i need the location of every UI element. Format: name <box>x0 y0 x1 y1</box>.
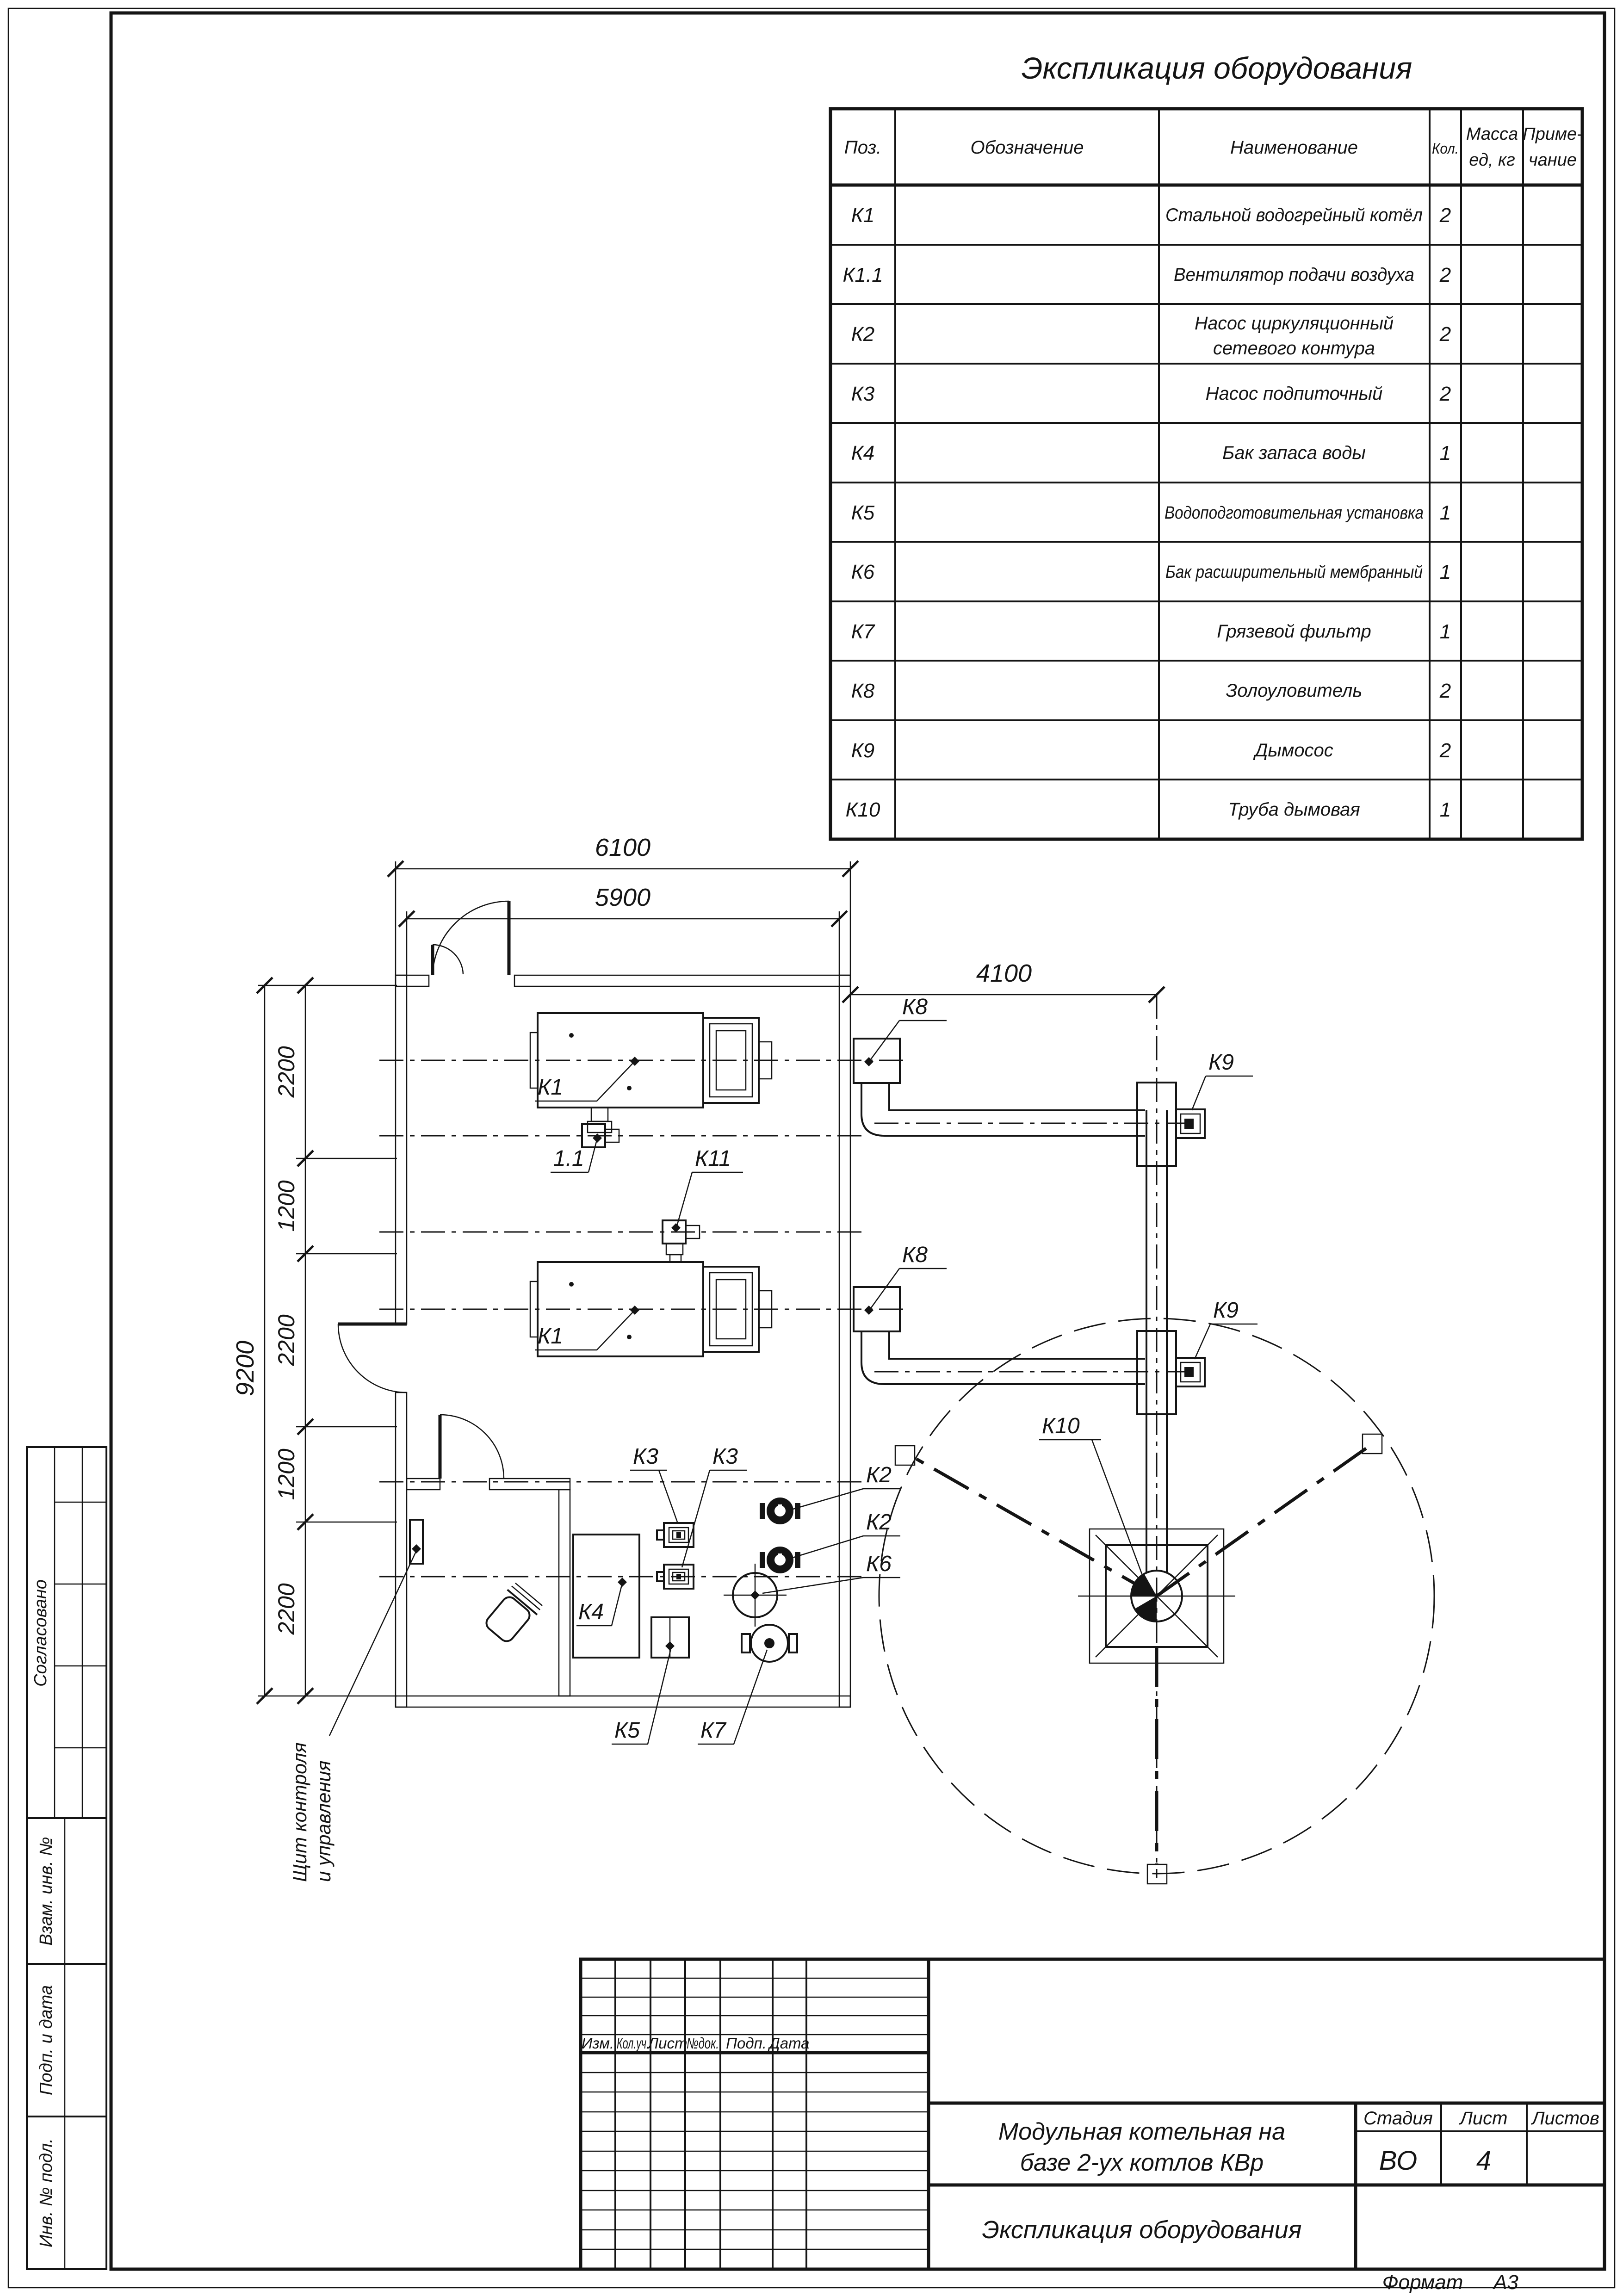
table-row: К10 Труба дымовая 1 <box>846 798 1451 821</box>
svg-text:К2: К2 <box>866 1463 892 1487</box>
col-header-qty: Кол. <box>1432 140 1459 157</box>
svg-text:К11: К11 <box>695 1146 731 1171</box>
dimension-9200: 9200 <box>231 978 397 1704</box>
svg-text:2200: 2200 <box>273 1046 299 1098</box>
stamp-inv-no: Инв. № подл. <box>27 2117 106 2269</box>
project-name-line2: базе 2-ух котлов КВр <box>1020 2149 1264 2176</box>
svg-text:Дата: Дата <box>767 2035 809 2052</box>
side-stamps: Согласовано Взам. инв. № Подп. и дата Ин… <box>27 1447 106 2269</box>
drawing-canvas: Экспликация оборудования Поз. Обозначени… <box>0 0 1623 2296</box>
svg-text:К6: К6 <box>851 561 875 583</box>
svg-text:Стальной водогрейный котёл: Стальной водогрейный котёл <box>1165 205 1423 225</box>
svg-text:2: 2 <box>1439 680 1451 702</box>
door-left <box>338 1324 407 1392</box>
svg-text:1200: 1200 <box>273 1448 299 1500</box>
table-row: К1.1 Вентилятор подачи воздуха 2 <box>842 264 1451 286</box>
svg-text:6100: 6100 <box>595 834 650 861</box>
svg-text:и управления: и управления <box>313 1761 335 1882</box>
dimension-4100: 4100 <box>842 959 1165 1003</box>
svg-text:Грязевой фильтр: Грязевой фильтр <box>1217 621 1371 642</box>
ash-catcher-k8-bottom <box>854 1287 1145 1384</box>
svg-text:Золоуловитель: Золоуловитель <box>1226 681 1363 701</box>
control-panel <box>410 1520 423 1564</box>
table-row: К5 Водоподготовительная установка 1 <box>851 501 1451 524</box>
svg-text:2: 2 <box>1439 204 1451 227</box>
ash-catcher-k8-top <box>854 1039 1145 1136</box>
col-header-mass-1: Масса <box>1466 124 1518 144</box>
svg-text:№док.: №док. <box>687 2035 719 2052</box>
equipment-table-header: Поз. Обозначение Наименование Кол. Масса… <box>844 124 1583 170</box>
sheets-label: Листов <box>1530 2108 1599 2129</box>
svg-text:Бак расширительный мембранный: Бак расширительный мембранный <box>1165 563 1423 582</box>
svg-text:Щит контроля: Щит контроля <box>289 1742 310 1882</box>
label-k1-top: К1 <box>535 1057 639 1101</box>
format-value: А3 <box>1492 2271 1518 2294</box>
svg-text:Подп.: Подп. <box>726 2035 767 2052</box>
label-k8-top: К8 <box>871 995 947 1059</box>
svg-text:К8: К8 <box>902 1243 928 1267</box>
sink <box>481 1582 544 1646</box>
project-name-line1: Модульная котельная на <box>998 2118 1285 2145</box>
svg-text:Вентилятор подачи воздуха: Вентилятор подачи воздуха <box>1174 265 1414 285</box>
label-k2-bottom: К2 <box>791 1510 900 1558</box>
label-k8-bottom: К8 <box>871 1243 947 1308</box>
svg-text:Согласовано: Согласовано <box>31 1579 50 1687</box>
svg-text:К5: К5 <box>614 1718 640 1743</box>
svg-text:К3: К3 <box>851 383 875 405</box>
dimension-chain-left: 2200 1200 2200 1200 2200 <box>273 978 397 1704</box>
svg-text:К6: К6 <box>866 1552 892 1576</box>
svg-text:Кол.уч.: Кол.уч. <box>617 2035 649 2052</box>
svg-text:1: 1 <box>1440 798 1451 821</box>
label-k4: К4 <box>576 1585 622 1626</box>
label-k9-top: К9 <box>1192 1050 1253 1110</box>
svg-text:К1: К1 <box>851 204 874 227</box>
stamp-sign-date: Подп. и дата <box>27 1964 106 2117</box>
svg-text:1: 1 <box>1440 561 1451 583</box>
pump-k3-1 <box>657 1523 694 1547</box>
svg-text:2200: 2200 <box>273 1583 299 1635</box>
svg-text:К5: К5 <box>851 501 875 524</box>
expansion-tank-k6 <box>724 1564 787 1627</box>
label-control-panel: Щит контроля и управления <box>289 1551 416 1882</box>
label-k3-right: К3 <box>682 1444 747 1567</box>
sheet-label: Лист <box>1459 2108 1508 2129</box>
table-row: К4 Бак запаса воды 1 <box>851 442 1451 464</box>
col-header-mass-2: ед, кг <box>1469 150 1515 170</box>
pump-k2-1 <box>760 1498 800 1524</box>
equipment-table: Экспликация оборудования Поз. Обозначени… <box>830 51 1583 839</box>
svg-text:К10: К10 <box>1042 1414 1080 1438</box>
svg-text:К9: К9 <box>1208 1050 1234 1075</box>
svg-text:К3: К3 <box>633 1444 658 1469</box>
svg-text:1: 1 <box>1440 442 1451 464</box>
svg-text:Дымосос: Дымосос <box>1253 740 1333 761</box>
svg-text:К10: К10 <box>846 798 880 821</box>
fan-k11-bottom <box>663 1220 700 1262</box>
svg-text:сетевого контура: сетевого контура <box>1213 338 1375 359</box>
dimension-5900: 5900 <box>399 884 847 975</box>
svg-text:5900: 5900 <box>595 884 650 911</box>
svg-text:2: 2 <box>1439 264 1451 286</box>
plan-labels: К1 1.1 К11 К1 К8 <box>289 995 1258 1882</box>
svg-text:К3: К3 <box>712 1444 738 1469</box>
label-k2-top: К2 <box>793 1463 900 1509</box>
svg-text:Инв. № подл.: Инв. № подл. <box>37 2138 56 2247</box>
svg-text:Водоподготовительная установка: Водоподготовительная установка <box>1165 503 1424 523</box>
stage-value: ВО <box>1379 2146 1418 2176</box>
svg-text:1: 1 <box>1440 620 1451 643</box>
label-k1-bottom: К1 <box>535 1306 639 1350</box>
stamp-replace-inv: Взам. инв. № <box>27 1818 106 1964</box>
svg-text:К4: К4 <box>851 442 874 464</box>
svg-text:Бак запаса воды: Бак запаса воды <box>1222 443 1366 463</box>
svg-text:2: 2 <box>1439 383 1451 405</box>
svg-text:К8: К8 <box>902 995 928 1019</box>
svg-text:К8: К8 <box>851 680 875 702</box>
svg-text:1200: 1200 <box>273 1180 299 1232</box>
equipment-table-title: Экспликация оборудования <box>1022 51 1412 85</box>
svg-text:К1: К1 <box>538 1075 563 1100</box>
stage-label: Стадия <box>1363 2108 1433 2129</box>
sheet-title: Экспликация оборудования <box>982 2216 1301 2244</box>
door-top <box>433 901 509 975</box>
label-fan-1-1: 1.1 <box>551 1133 602 1172</box>
stamp-approved: Согласовано <box>27 1447 106 1818</box>
svg-text:К4: К4 <box>578 1600 604 1624</box>
svg-text:К1: К1 <box>538 1324 563 1349</box>
label-k3-left: К3 <box>630 1444 677 1522</box>
label-k10: К10 <box>1039 1414 1151 1591</box>
svg-text:Взам. инв. №: Взам. инв. № <box>37 1837 56 1945</box>
svg-text:Подп. и дата: Подп. и дата <box>37 1985 56 2095</box>
pump-k2-2 <box>760 1547 800 1573</box>
col-header-note-2: чание <box>1529 150 1577 170</box>
col-header-note-1: Приме- <box>1523 124 1583 144</box>
svg-text:Труба дымовая: Труба дымовая <box>1228 799 1360 820</box>
table-row: К2 Насос циркуляционный сетевого контура… <box>851 313 1451 359</box>
svg-text:1.1: 1.1 <box>553 1146 584 1171</box>
col-header-pos: Поз. <box>844 137 882 158</box>
svg-text:К2: К2 <box>851 323 874 346</box>
svg-text:1: 1 <box>1440 501 1451 524</box>
filter-k7 <box>742 1625 797 1662</box>
col-header-designation: Обозначение <box>970 137 1084 158</box>
svg-text:К2: К2 <box>866 1510 892 1535</box>
format-label: Формат <box>1382 2271 1463 2294</box>
svg-text:2: 2 <box>1439 739 1451 762</box>
label-k7: К7 <box>698 1650 767 1744</box>
table-row: К3 Насос подпиточный 2 <box>851 383 1451 405</box>
svg-text:Изм.: Изм. <box>582 2035 614 2052</box>
svg-text:2: 2 <box>1439 323 1451 346</box>
svg-text:Лист: Лист <box>647 2035 688 2052</box>
drawing-sheet: Экспликация оборудования Поз. Обозначени… <box>0 0 1623 2296</box>
floor-plan: 6100 5900 4100 9200 <box>231 834 1434 1884</box>
svg-text:9200: 9200 <box>231 1341 259 1396</box>
table-row: К1 Стальной водогрейный котёл 2 <box>851 204 1451 227</box>
tank-k4 <box>573 1535 639 1658</box>
building-walls <box>396 975 850 1707</box>
svg-text:К7: К7 <box>851 620 875 643</box>
col-header-name: Наименование <box>1230 137 1358 158</box>
svg-text:К1.1: К1.1 <box>842 264 883 286</box>
svg-text:Насос циркуляционный: Насос циркуляционный <box>1195 313 1394 334</box>
boiler-k1-top <box>530 1013 772 1133</box>
svg-text:Насос подпиточный: Насос подпиточный <box>1206 384 1383 404</box>
title-block: Изм. Кол.уч. Лист №док. Подп. Дата Модул… <box>581 1959 1604 2269</box>
sheet-value: 4 <box>1476 2146 1491 2176</box>
table-row: К9 Дымосос 2 <box>851 739 1451 762</box>
svg-text:К7: К7 <box>700 1718 727 1743</box>
svg-text:К9: К9 <box>851 739 874 762</box>
table-row: К8 Золоуловитель 2 <box>851 680 1451 702</box>
svg-text:2200: 2200 <box>273 1314 299 1366</box>
format-note: Формат А3 <box>1382 2271 1519 2294</box>
label-k9-bottom: К9 <box>1195 1298 1258 1359</box>
table-row: К7 Грязевой фильтр 1 <box>851 620 1451 643</box>
svg-text:4100: 4100 <box>976 959 1032 987</box>
table-row: К6 Бак расширительный мембранный 1 <box>851 561 1451 583</box>
svg-text:К9: К9 <box>1213 1298 1239 1323</box>
door-vestibule <box>440 1415 504 1479</box>
